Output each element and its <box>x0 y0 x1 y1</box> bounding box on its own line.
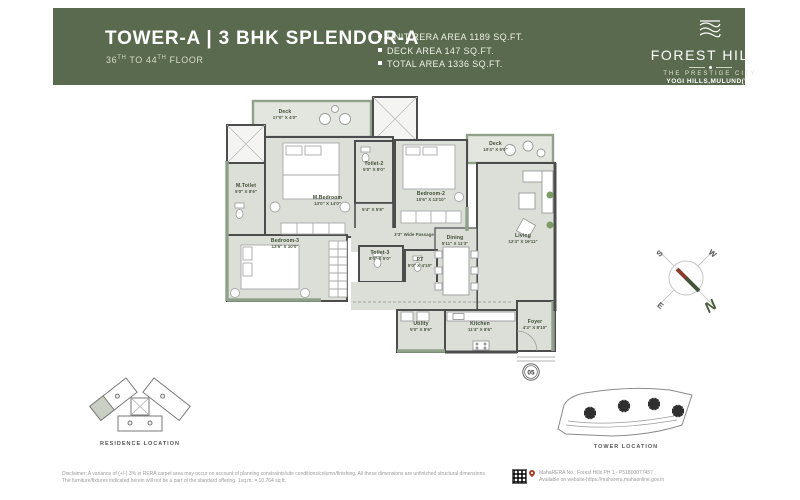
floor-range: 36TH TO 44TH FLOOR <box>106 55 204 65</box>
m-toilet-room <box>227 163 265 235</box>
brochure-page: { "colors": { "header_green": "#5a6a4e",… <box>0 0 800 500</box>
logo-location: YOGI HILLS,MULUND(W) <box>630 78 790 85</box>
unit-number: 05 <box>527 370 535 377</box>
disclaimer-line-2: The furniture/fixtures indicated herein … <box>62 478 507 485</box>
residence-location-label: RESIDENCE LOCATION <box>70 441 210 447</box>
compass-s: S <box>655 248 665 259</box>
compass-rose: S W E N <box>648 240 724 316</box>
shaft-top <box>373 97 417 141</box>
residence-location-plan <box>82 376 198 438</box>
logo-divider <box>630 66 790 69</box>
logo-name: FOREST HILLS <box>630 47 790 63</box>
floor-range-part: FLOOR <box>166 55 203 65</box>
disclaimer-line-1: Disclaimer: A variance of (+/-) 3% in RE… <box>62 471 507 478</box>
page-title: TOWER-A | 3 BHK SPLENDOR-A <box>105 28 419 50</box>
unit-rera-area: UNIT RERA AREA 1189 SQ.FT. <box>387 32 524 42</box>
plant-icon <box>547 222 554 229</box>
area-summary: UNIT RERA AREA 1189 SQ.FT. DECK AREA 147… <box>378 31 524 72</box>
tower-location-label: TOWER LOCATION <box>552 444 700 450</box>
header-band: TOWER-A | 3 BHK SPLENDOR-A 36TH TO 44TH … <box>53 8 745 85</box>
bullet-icon <box>378 48 382 52</box>
disclaimer: Disclaimer: A variance of (+/-) 3% in RE… <box>62 471 507 484</box>
dining-furniture <box>435 247 478 295</box>
floor-plan: 05 Deck17'0" X 4'0" M.Toilet5'0" X 8'6" … <box>225 95 560 390</box>
compass-w: W <box>707 248 719 260</box>
tower-location-plan <box>552 385 700 441</box>
bullet-icon <box>378 34 382 38</box>
rera-number: MahaRERA No.: Forest Hills PH 1 - P51800… <box>539 470 664 477</box>
hills-waves-icon <box>693 18 727 40</box>
shaft-left <box>227 125 265 163</box>
entrance-steps <box>517 357 555 361</box>
area-line: TOTAL AREA 1336 SQ.FT. <box>378 58 524 72</box>
bedroom-2-furniture <box>401 145 464 223</box>
bedroom-3-furniture <box>231 241 348 298</box>
floor-range-part: TO 44 <box>126 55 157 65</box>
floor-plan-drawing: 05 <box>225 95 560 390</box>
qr-code <box>512 469 527 484</box>
deck-area: DECK AREA 147 SQ.FT. <box>387 46 494 56</box>
plant-icon <box>547 192 554 199</box>
logo-subtitle: THE PRESTIGE CITY <box>630 71 790 77</box>
forest-hills-logo: FOREST HILLS THE PRESTIGE CITY YOGI HILL… <box>630 18 790 85</box>
compass-n: N <box>701 296 721 316</box>
total-area: TOTAL AREA 1336 SQ.FT. <box>387 59 503 69</box>
area-line: UNIT RERA AREA 1189 SQ.FT. <box>378 31 524 45</box>
rera-info: MahaRERA No.: Forest Hills PH 1 - P51800… <box>539 470 664 483</box>
floor-range-part: 36 <box>106 55 117 65</box>
deck-left-room <box>253 101 371 137</box>
rera-website: Available on website-https://maharera.ma… <box>539 477 664 484</box>
bullet-icon <box>378 61 382 65</box>
compass-e: E <box>655 300 665 311</box>
location-pin-icon <box>528 469 536 477</box>
area-line: DECK AREA 147 SQ.FT. <box>378 45 524 59</box>
unit-number-badge: 05 <box>523 364 539 380</box>
